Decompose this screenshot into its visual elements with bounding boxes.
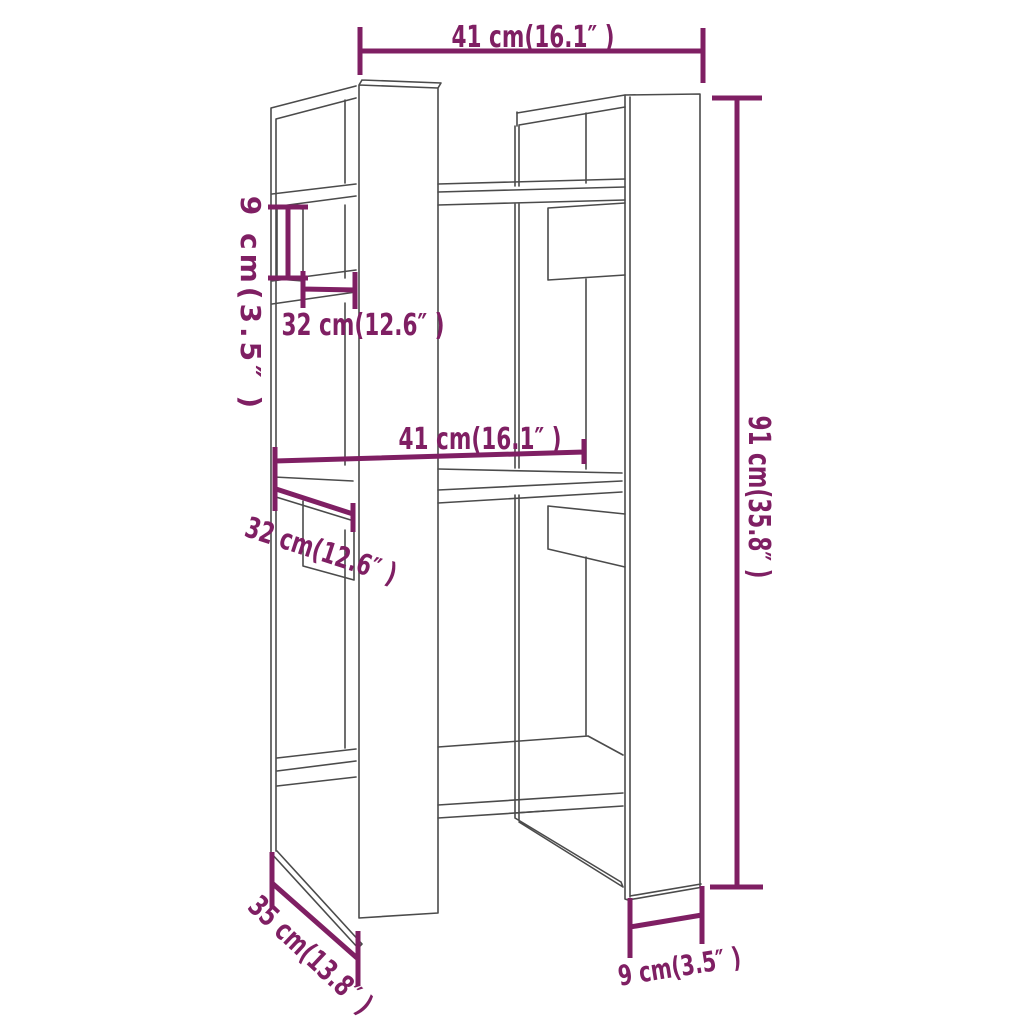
center-panel — [359, 80, 441, 918]
dimension-middle-width-label: 41 cm(16.1″ ) — [398, 423, 561, 457]
left-panel — [271, 86, 362, 948]
dimension-upper-shelf-width-label: 32 cm(12.6″ ) — [281, 309, 444, 343]
dimension-middle-shelf-width-label: 32 cm(12.6″ ) — [241, 511, 401, 591]
dimension-top-width-label: 41 cm(16.1″ ) — [451, 21, 614, 55]
dimension-upper-shelf-height-line — [268, 207, 308, 278]
dimension-base-panel-width-label: 9 cm(3.5″ ) — [616, 940, 744, 992]
left-shelves — [272, 184, 356, 786]
furniture-dimension-diagram: 41 cm(16.1″ ) 9 cm(3.5″ ) 32 cm(12.6″ ) … — [0, 0, 1024, 1024]
dimension-upper-shelf-height-label: 9 cm(3.5″ ) — [234, 196, 267, 412]
dimension-labels: 41 cm(16.1″ ) 9 cm(3.5″ ) 32 cm(12.6″ ) … — [234, 21, 775, 1021]
diagram-canvas: 41 cm(16.1″ ) 9 cm(3.5″ ) 32 cm(12.6″ ) … — [0, 0, 1024, 1024]
dimension-overall-height-label: 91 cm(35.8″ ) — [741, 415, 775, 578]
back-panels — [515, 112, 623, 887]
furniture-drawing — [271, 80, 703, 948]
right-panel — [625, 94, 703, 900]
